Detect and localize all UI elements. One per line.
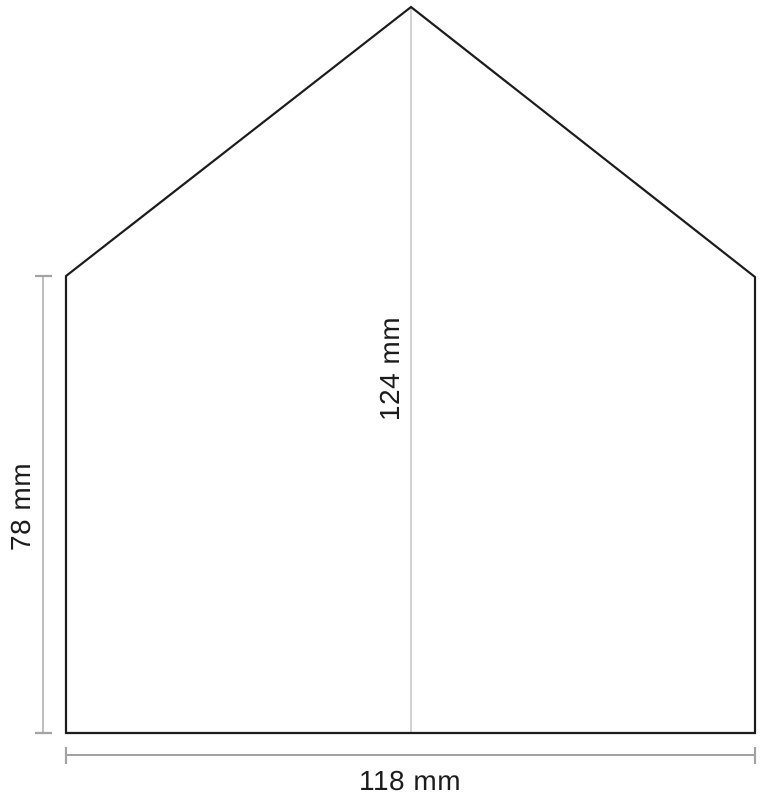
dimension-drawing: 78 mm 124 mm 118 mm [0, 0, 769, 800]
bottom-dimension: 118 mm [66, 747, 755, 796]
bottom-dimension-label: 118 mm [359, 765, 461, 796]
center-dimension-label: 124 mm [374, 317, 405, 421]
left-dimension: 78 mm [5, 276, 52, 733]
drawing-svg: 78 mm 124 mm 118 mm [0, 0, 769, 800]
left-dimension-label: 78 mm [5, 463, 36, 551]
